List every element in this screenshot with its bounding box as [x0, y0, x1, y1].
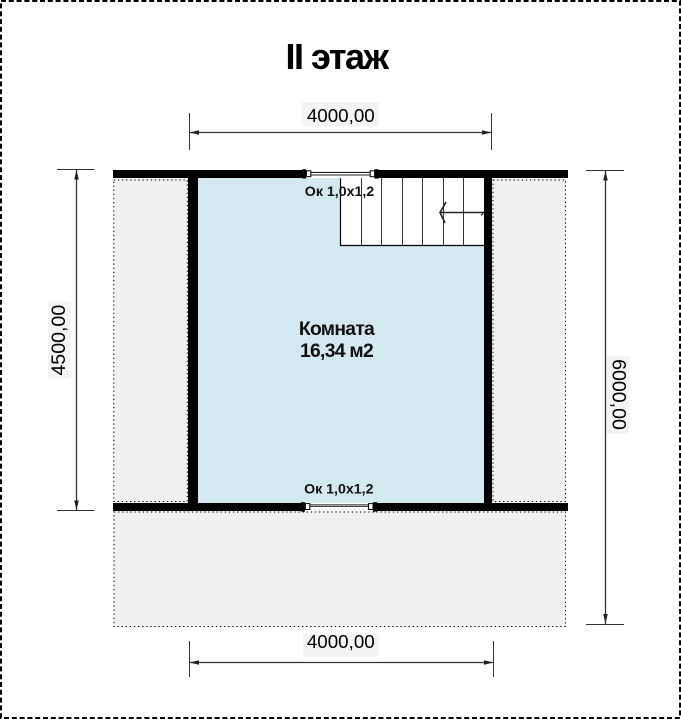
svg-text:16,34 м2: 16,34 м2	[300, 341, 373, 362]
svg-text:4000,00: 4000,00	[307, 631, 375, 652]
svg-text:4500,00: 4500,00	[48, 305, 70, 376]
svg-text:Ок 1,0х1,2: Ок 1,0х1,2	[305, 184, 375, 200]
svg-text:II этаж: II этаж	[285, 36, 389, 77]
svg-text:Ок 1,0х1,2: Ок 1,0х1,2	[304, 481, 374, 497]
svg-text:Комната: Комната	[299, 319, 375, 340]
svg-text:6000,00: 6000,00	[607, 359, 629, 430]
svg-text:4000,00: 4000,00	[307, 105, 375, 126]
